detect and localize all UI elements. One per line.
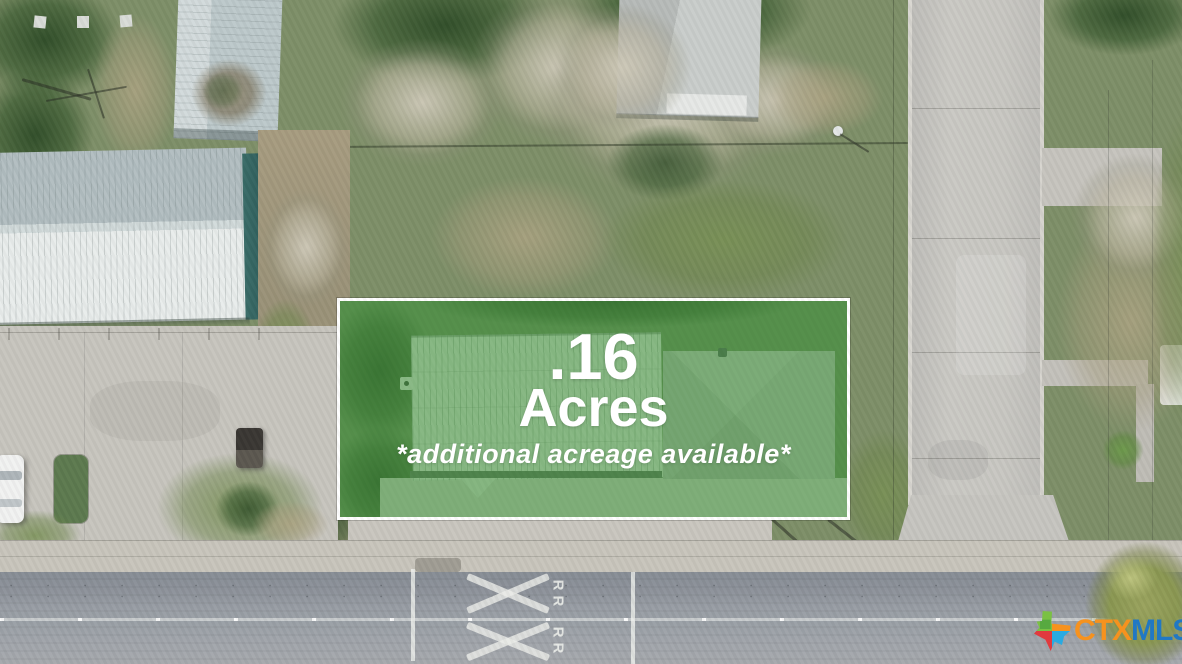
tree-canopy bbox=[1040, 0, 1182, 60]
street-joint bbox=[912, 108, 1040, 109]
fence-line bbox=[893, 0, 894, 540]
pavement-stain bbox=[415, 558, 461, 572]
rr-paint-label-bottom: RR bbox=[538, 630, 578, 654]
warehouse-roof bbox=[0, 148, 250, 325]
side-street bbox=[908, 0, 1044, 505]
parking-tick bbox=[8, 328, 10, 340]
concrete-pad bbox=[119, 14, 132, 27]
concrete-pad bbox=[77, 16, 89, 28]
center-line bbox=[0, 618, 1182, 621]
bare-tree bbox=[260, 185, 352, 310]
lane-line bbox=[411, 569, 415, 661]
car-windshield bbox=[0, 471, 22, 480]
expansion-joint bbox=[84, 332, 85, 558]
parking-tick bbox=[108, 328, 110, 340]
railroad-crossing-marking-top bbox=[470, 577, 546, 611]
small-tree bbox=[1100, 428, 1146, 472]
ctxmls-watermark: CTXMLS bbox=[1032, 606, 1178, 656]
white-car bbox=[0, 455, 24, 523]
dry-grass-patch bbox=[760, 55, 890, 140]
aerial-photo: RR RR .16 Acres *additional acr bbox=[0, 0, 1182, 664]
road-shoulder bbox=[0, 540, 1182, 573]
lane-line bbox=[631, 572, 635, 664]
power-line bbox=[1152, 60, 1153, 560]
texas-state-icon bbox=[1032, 609, 1072, 653]
lot-boundary: .16 Acres *additional acreage available* bbox=[337, 298, 850, 520]
pavement-stain bbox=[90, 381, 220, 441]
asphalt-speckle-band bbox=[0, 580, 1182, 600]
shoulder-joint bbox=[0, 540, 1182, 541]
parking-tick bbox=[258, 328, 260, 340]
power-line bbox=[1108, 90, 1109, 560]
street-curb-right bbox=[1040, 0, 1044, 505]
parking-tick bbox=[58, 328, 60, 340]
lot-label-acreage-value: .16 bbox=[340, 329, 847, 385]
parking-tick bbox=[208, 328, 210, 340]
leafy-tree-highlight bbox=[1100, 552, 1162, 604]
bare-tree bbox=[550, 0, 695, 135]
lot-label-note: *additional acreage available* bbox=[340, 439, 847, 470]
roof-rib-lines bbox=[0, 148, 250, 325]
mls-text: MLS bbox=[1131, 614, 1182, 647]
dark-truck bbox=[236, 428, 263, 468]
car-rear-window bbox=[0, 499, 22, 507]
lot-label-acreage-unit: Acres bbox=[340, 381, 847, 435]
tree-shadow bbox=[200, 70, 246, 112]
rr-text: RR bbox=[549, 626, 566, 658]
rr-text: RR bbox=[549, 579, 566, 611]
shoulder-joint bbox=[0, 556, 1182, 557]
pavement-patch bbox=[956, 255, 1026, 375]
highway: RR RR bbox=[0, 572, 1182, 664]
street-curb-left bbox=[908, 0, 912, 505]
ctx-text: CTX bbox=[1074, 614, 1131, 647]
street-joint bbox=[912, 238, 1040, 239]
concrete-pad bbox=[33, 15, 46, 28]
rr-paint-label-top: RR bbox=[538, 583, 578, 607]
expansion-joint bbox=[0, 332, 338, 333]
parking-tick bbox=[158, 328, 160, 340]
warehouse bbox=[0, 147, 276, 339]
pavement-stain bbox=[928, 440, 988, 480]
railroad-crossing-marking-bottom bbox=[470, 626, 546, 658]
grass-patch bbox=[590, 175, 860, 305]
